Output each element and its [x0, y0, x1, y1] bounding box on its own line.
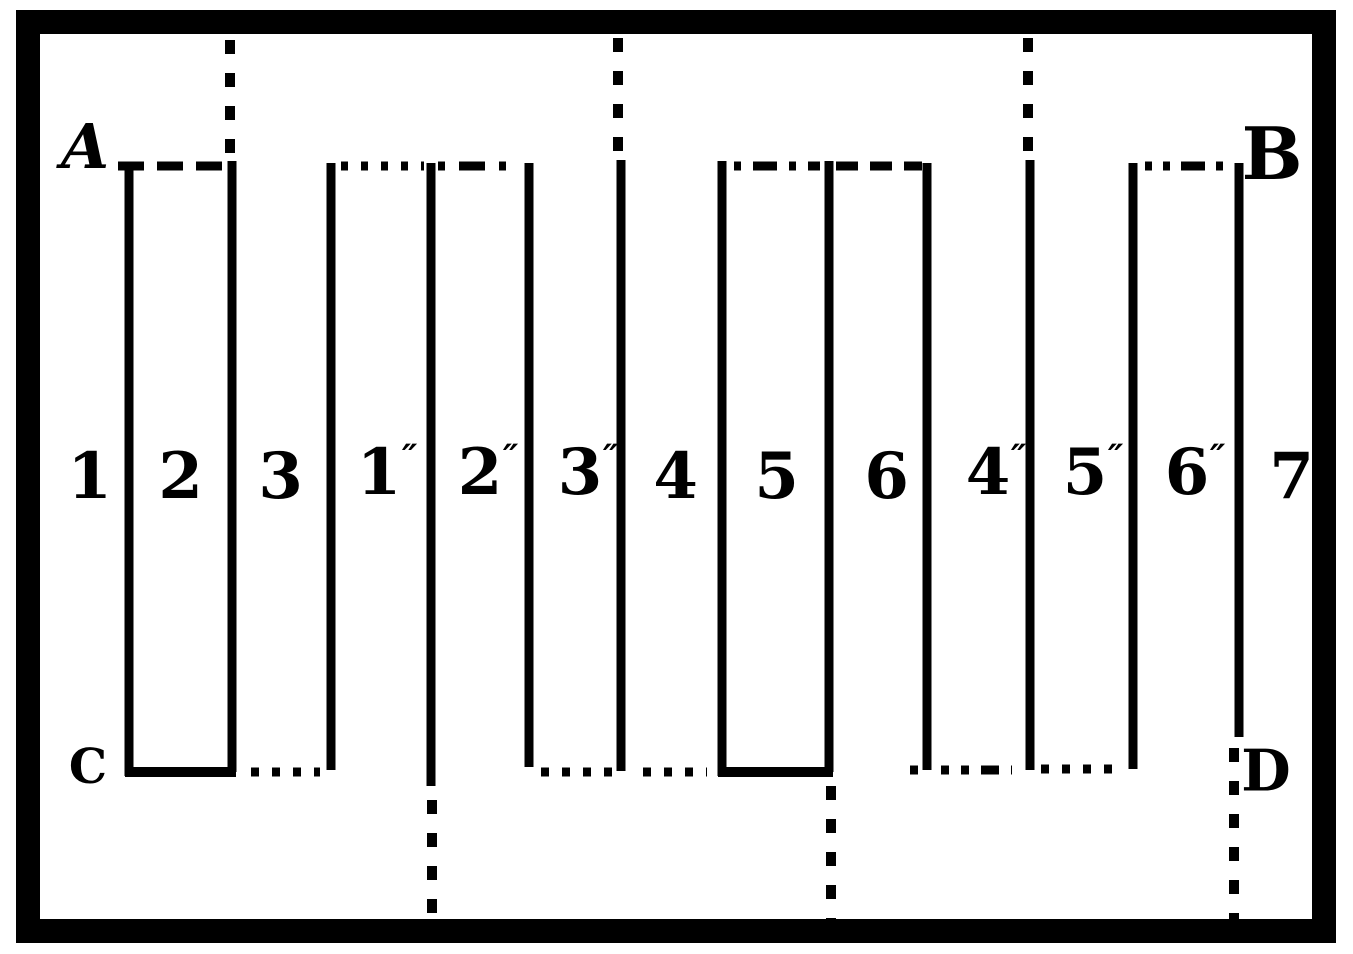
- prime-mark: ″: [402, 441, 415, 476]
- prime-mark: ″: [1011, 441, 1024, 476]
- panel-label-4pp: 4″: [966, 441, 1025, 505]
- panel-label-4: 4: [653, 445, 698, 509]
- panel-label-3pp: 3″: [558, 441, 617, 505]
- panel-label-5: 5: [754, 445, 799, 509]
- panel-label-1: 1: [67, 445, 112, 509]
- corner-label-a: A: [61, 116, 109, 178]
- panel-label-6: 6: [864, 445, 909, 509]
- prime-mark: ″: [1210, 441, 1223, 476]
- corner-label-d: D: [1241, 743, 1290, 800]
- dotted-extensions-top: [230, 38, 1028, 156]
- panel-label-5pp: 5″: [1063, 441, 1122, 505]
- panel-label-1pp: 1″: [357, 441, 416, 505]
- panel-label-7: 7: [1269, 445, 1314, 509]
- figure-canvas: A B C D 1 2 3 1″ 2″ 3″ 4 5 6 4″ 5″ 6″ 7: [0, 0, 1353, 954]
- panel-label-2pp: 2″: [458, 441, 517, 505]
- prime-mark: ″: [1108, 441, 1121, 476]
- prime-mark: ″: [503, 441, 516, 476]
- panel-label-6pp: 6″: [1165, 441, 1224, 505]
- panel-label-2: 2: [158, 445, 203, 509]
- corner-label-c: C: [69, 743, 107, 791]
- panel-label-3: 3: [258, 445, 303, 509]
- corner-label-b: B: [1242, 118, 1303, 190]
- prime-mark: ″: [603, 441, 616, 476]
